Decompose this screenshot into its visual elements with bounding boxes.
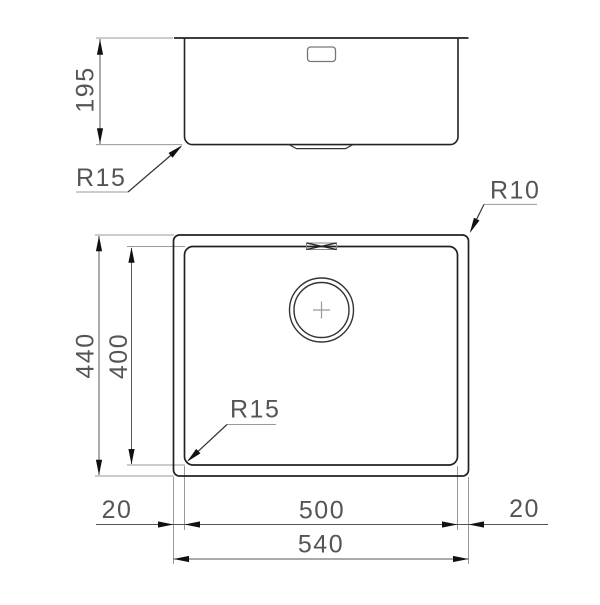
svg-text:195: 195 <box>72 66 100 112</box>
svg-text:400: 400 <box>105 333 133 379</box>
svg-text:440: 440 <box>72 332 100 378</box>
svg-text:R10: R10 <box>490 177 540 205</box>
svg-text:20: 20 <box>102 496 133 524</box>
svg-text:R15: R15 <box>230 396 280 424</box>
svg-text:20: 20 <box>509 495 540 523</box>
svg-text:540: 540 <box>298 531 344 559</box>
svg-text:R15: R15 <box>76 164 126 192</box>
svg-text:500: 500 <box>299 497 345 525</box>
